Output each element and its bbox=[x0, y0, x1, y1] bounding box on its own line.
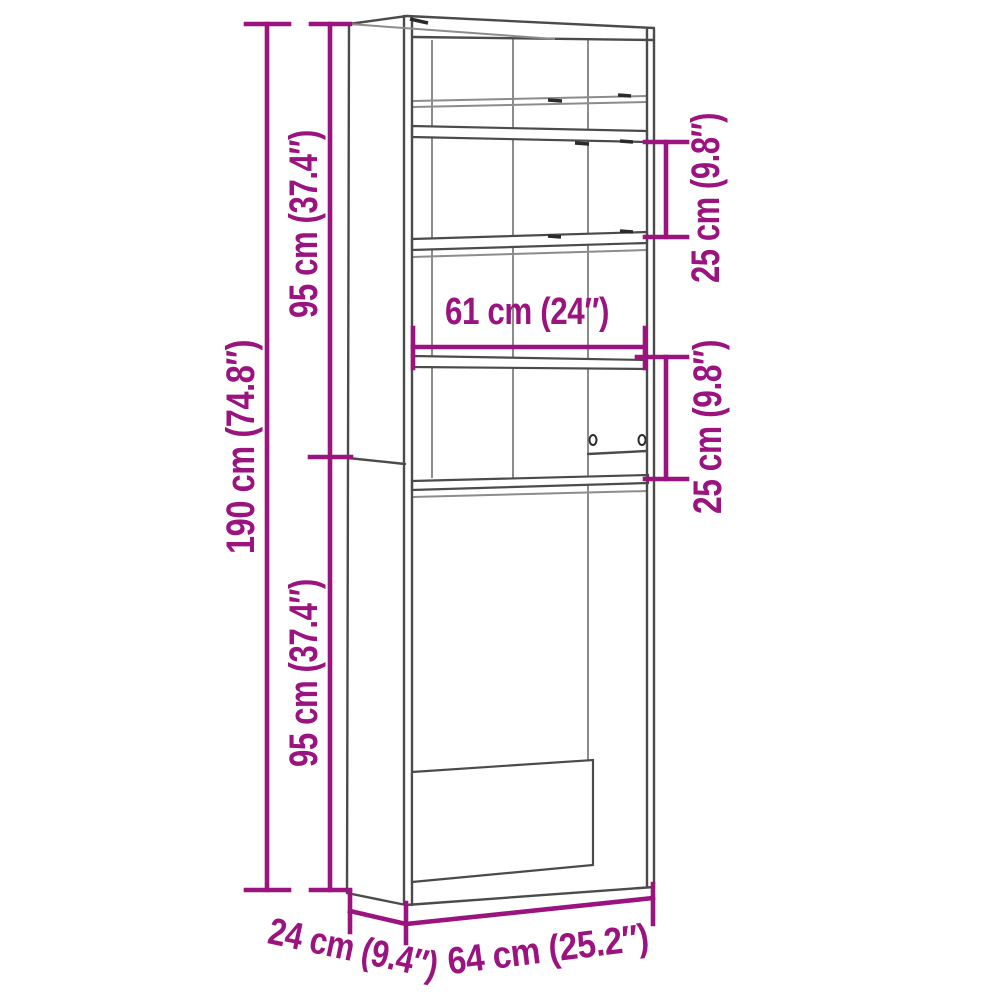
cabinet-worktop bbox=[412, 475, 648, 497]
overall-width-label: 64 cm (25.2″) bbox=[445, 917, 651, 983]
cabinet-lower-back-panel bbox=[412, 760, 593, 882]
total-height-label: 190 cm (74.8″) bbox=[219, 340, 263, 554]
upper-shelf-spacing-label: 25 cm (9.8″) bbox=[684, 113, 728, 283]
dimension-diagram-canvas: 190 cm (74.8″) 95 cm (37.4″) 95 cm (37.4… bbox=[0, 0, 1000, 1000]
lower-shelf-spacing-label: 25 cm (9.8″) bbox=[686, 340, 730, 514]
dimension-total-height: 190 cm (74.8″) bbox=[219, 24, 289, 890]
cabinet-left-panel bbox=[347, 16, 407, 905]
lower-section-height-label: 95 cm (37.4″) bbox=[282, 579, 326, 767]
dimension-upper-shelf-spacing: 25 cm (9.8″) bbox=[645, 113, 728, 283]
upper-section-height-label: 95 cm (37.4″) bbox=[282, 130, 326, 318]
cabinet-shelf-1 bbox=[412, 126, 647, 144]
dimension-depth: 24 cm (9.4″) bbox=[265, 892, 442, 987]
cabinet-top-panel bbox=[349, 16, 654, 40]
cabinet-shelf-2 bbox=[412, 231, 647, 257]
dimension-overall-width: 64 cm (25.2″) bbox=[406, 884, 653, 983]
screw-hole bbox=[639, 435, 646, 445]
cabinet-shelf-3 bbox=[413, 356, 647, 369]
dimension-lower-shelf-spacing: 25 cm (9.8″) bbox=[637, 340, 730, 514]
cabinet-fittings bbox=[588, 435, 647, 454]
screw-hole bbox=[590, 435, 597, 445]
dimension-section-heights: 95 cm (37.4″) 95 cm (37.4″) bbox=[282, 24, 351, 890]
cabinet-line-drawing bbox=[347, 16, 654, 905]
cabinet-back-panel-seams bbox=[432, 38, 588, 760]
cabinet-back-top-edge bbox=[413, 95, 647, 107]
inner-width-label: 61 cm (24″) bbox=[445, 291, 609, 333]
cabinet-dimension-diagram: 190 cm (74.8″) 95 cm (37.4″) 95 cm (37.4… bbox=[0, 0, 1000, 1000]
